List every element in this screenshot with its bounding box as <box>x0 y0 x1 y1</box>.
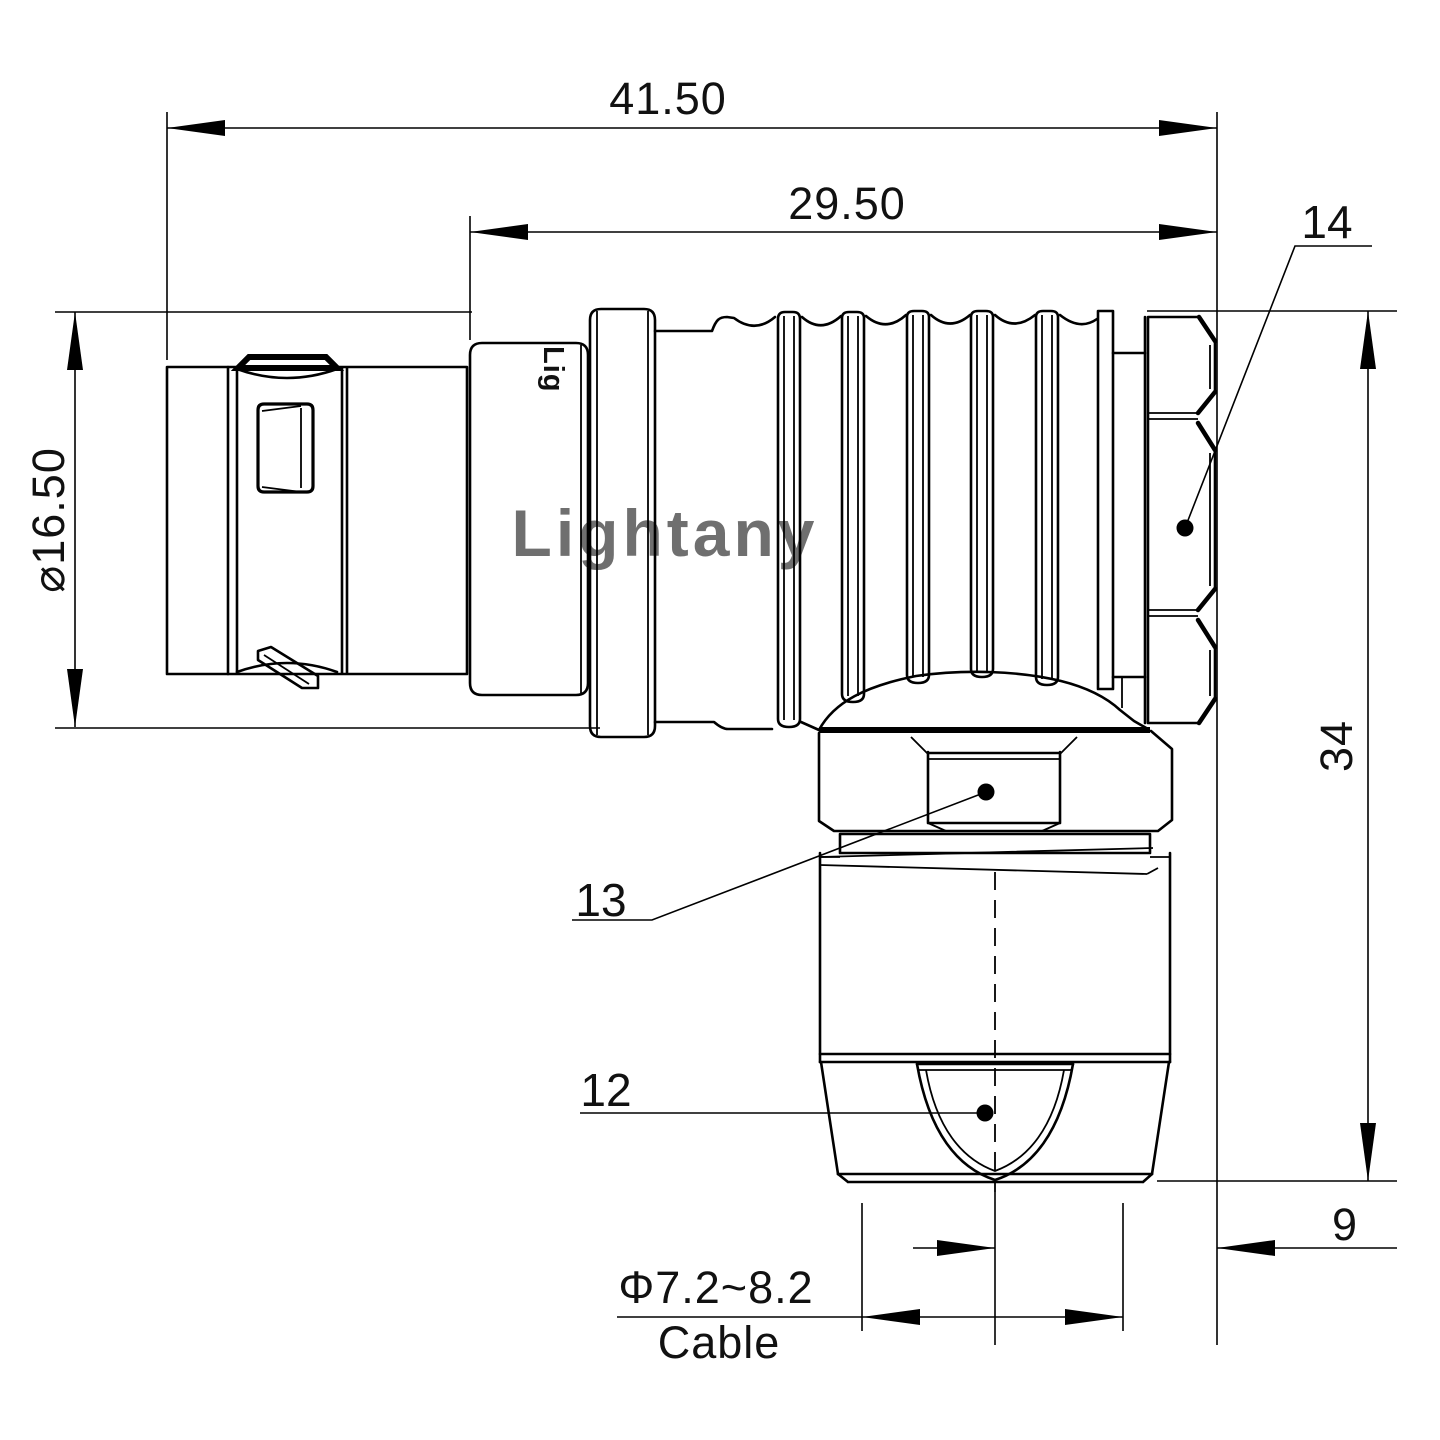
part-label-14: 14 <box>1301 196 1352 248</box>
key-tab <box>238 357 337 368</box>
connector-hex-flange <box>819 730 1172 831</box>
technical-drawing-page: 41.50 29.50 ⌀16.50 34 9 Φ7.2~8.2 Cable <box>0 0 1440 1440</box>
leader-dot-12 <box>977 1105 994 1122</box>
dimension-front-diameter: ⌀16.50 <box>23 312 83 727</box>
cable-diameter-value: Φ7.2~8.2 <box>618 1262 813 1313</box>
dimension-overall-length: 41.50 <box>167 73 1217 136</box>
connector-back-nut <box>1145 317 1215 723</box>
connector-front-plug <box>167 357 467 688</box>
overall-length-value: 41.50 <box>609 73 727 124</box>
connector-neck-ring <box>820 834 1158 874</box>
dimension-overall-height: 34 <box>1311 311 1376 1181</box>
overall-height-value: 34 <box>1311 720 1362 772</box>
callout-back-nut: 14 <box>1177 196 1373 537</box>
leader-dot-13 <box>978 784 995 801</box>
connector-washer <box>1098 311 1145 708</box>
leader-dot-14 <box>1177 520 1194 537</box>
dimension-rear-offset: 9 <box>913 1199 1397 1256</box>
cable-label: Cable <box>658 1317 781 1368</box>
dimension-rear-length: 29.50 <box>470 178 1217 240</box>
rear-offset-value: 9 <box>1332 1199 1358 1250</box>
body-marking-text: Lig <box>537 346 569 393</box>
part-label-13: 13 <box>575 874 626 926</box>
rear-length-value: 29.50 <box>788 178 906 229</box>
latch-tab <box>258 647 318 688</box>
bayonet-window <box>258 404 313 492</box>
front-diameter-value: ⌀16.50 <box>23 447 74 593</box>
connector-drawing: 41.50 29.50 ⌀16.50 34 9 Φ7.2~8.2 Cable <box>0 0 1440 1440</box>
watermark-text: Lightany <box>512 496 819 570</box>
part-label-12: 12 <box>580 1064 631 1116</box>
dimension-cable: Φ7.2~8.2 Cable <box>617 1262 1123 1368</box>
